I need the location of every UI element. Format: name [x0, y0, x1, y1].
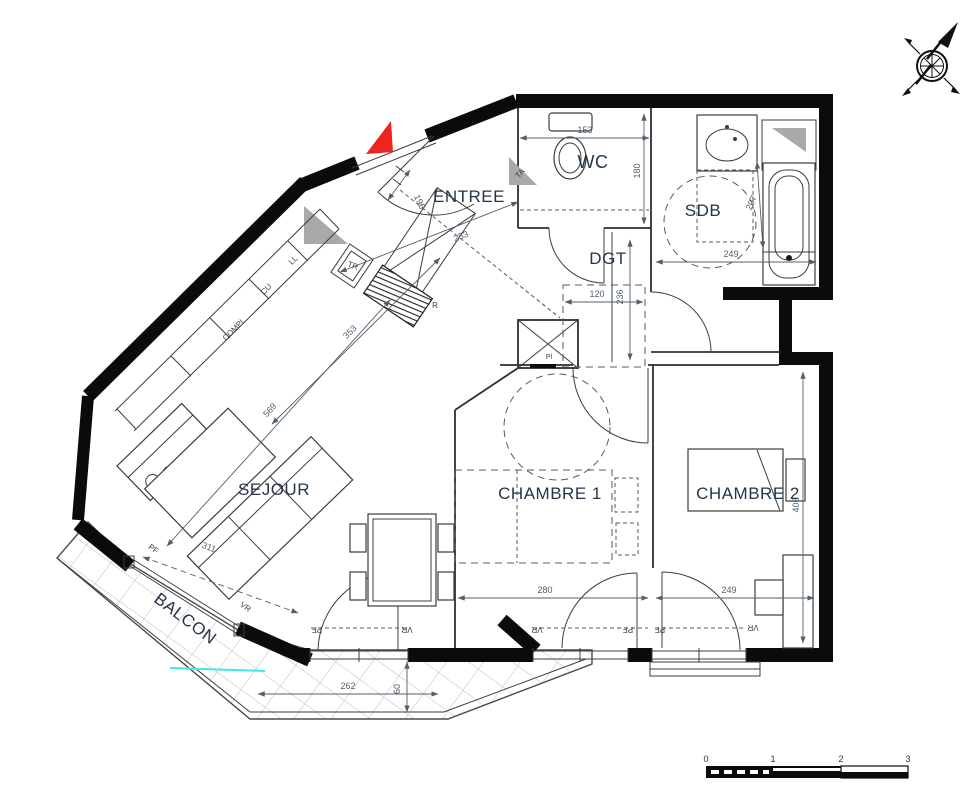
bathtub [763, 163, 815, 285]
fixture-label-ll: LL [287, 254, 300, 267]
fixture-label-placard: Pl [546, 354, 553, 361]
scale-bar: 0 1 2 3 [703, 754, 910, 778]
furniture-chambre2 [688, 449, 813, 648]
dim-sdb-width: 249 [723, 249, 738, 259]
room-label-chambre2: CHAMBRE 2 [696, 484, 800, 503]
door-sdb [651, 292, 711, 352]
entrance-triangle-marker [366, 121, 393, 154]
shaft-sdb [772, 128, 806, 152]
room-label-sejour: SEJOUR [238, 480, 310, 499]
scale-tick-1: 1 [770, 754, 775, 764]
fixture-label-cu: CU [259, 282, 274, 297]
dim-wc-depth: 180 [632, 163, 642, 178]
room-label-sdb: SDB [685, 201, 721, 220]
dim-chambre1-width: 280 [537, 585, 552, 595]
window-label-pf-balcony: PF [147, 542, 161, 555]
room-label-entree: ENTREE [433, 187, 505, 206]
dim-balcon-depth: 60 [392, 684, 402, 694]
window-label-pf-chambre2: PF [655, 625, 665, 634]
dgt-details [400, 190, 645, 367]
room-label-chambre1: CHAMBRE 1 [498, 484, 602, 503]
dim-dgt-width: 120 [589, 289, 604, 299]
dim-sejour-length: 569 [261, 401, 278, 419]
scale-tick-0: 0 [703, 754, 708, 764]
floor-plan-page: BALCON [0, 0, 978, 800]
fixture-label-compl: COMPL [221, 316, 248, 343]
furniture-sejour [117, 403, 454, 606]
dining-table [350, 514, 454, 606]
dim-entry-door: 196 [412, 193, 428, 211]
room-label-dgt: DGT [589, 249, 626, 268]
window-label-vr-chambre2: VR [747, 623, 758, 632]
sdb-turning-circle [664, 176, 756, 268]
window-label-vr-chambre1: VR [531, 625, 542, 634]
furniture-chambre1 [455, 374, 638, 563]
floor-plan-svg: BALCON [0, 0, 978, 800]
window-label-vr-balcony: VR [238, 600, 252, 614]
chambre1-turning-circle [504, 374, 610, 480]
dim-dgt-length: 236 [615, 289, 625, 304]
fixture-label-tr: TR [346, 260, 359, 272]
scale-tick-3: 3 [905, 754, 910, 764]
window-label-pf-sejour: PF [312, 625, 322, 634]
door-chambre1-balcony [562, 573, 637, 648]
window-label-pf-chambre1: PF [623, 625, 633, 634]
placard: Pl [518, 320, 578, 368]
dim-sdb-diag: 207 [744, 194, 759, 212]
shaft-kitchen [304, 206, 348, 244]
window-label-vr-sejour: VR [401, 625, 412, 634]
compass-rose-icon [902, 22, 960, 96]
dim-chambre2-width: 249 [721, 585, 736, 595]
dim-balcon-length: 262 [340, 681, 355, 691]
dim-wc-width: 153 [577, 125, 592, 135]
door-chambre2 [662, 572, 740, 650]
room-label-wc: WC [578, 152, 609, 172]
fixture-label-r: R [432, 301, 438, 310]
dim-entree-length: 253 [452, 229, 470, 244]
desk-chambre2 [783, 555, 813, 648]
door-chambre1 [573, 368, 648, 443]
scale-tick-2: 2 [838, 754, 843, 764]
chair-chambre2 [755, 580, 783, 615]
